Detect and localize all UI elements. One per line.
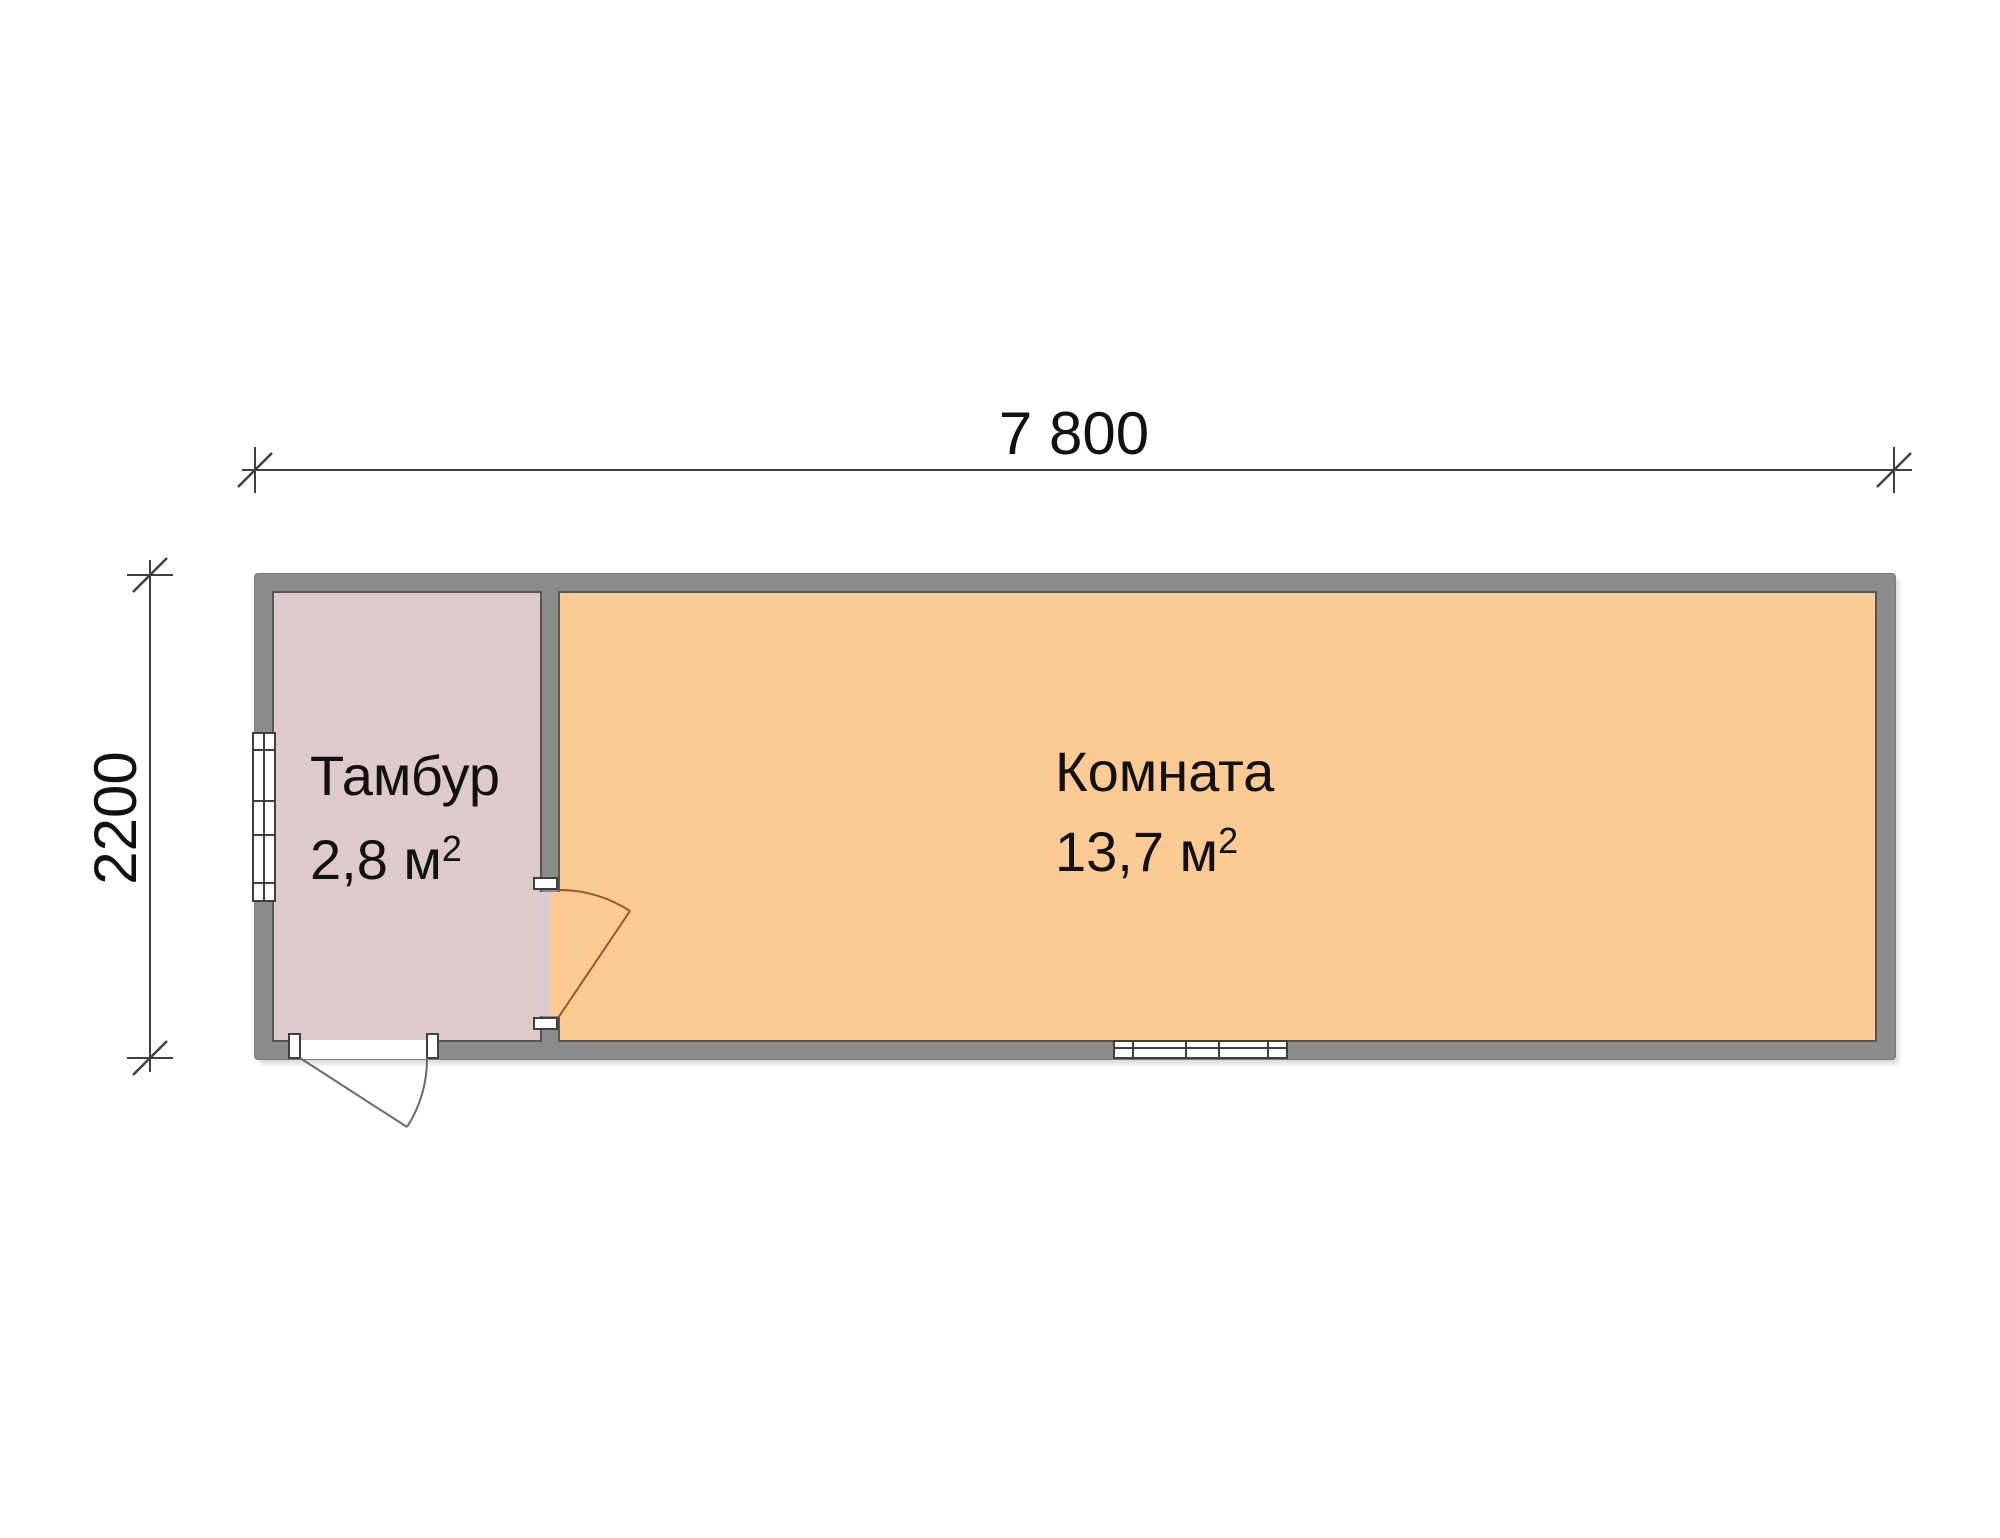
room-vestibule-area-exponent: 2 xyxy=(442,828,462,869)
interior-door-jamb-bottom xyxy=(533,1017,558,1030)
room-vestibule xyxy=(272,591,542,1042)
entrance-door-swing xyxy=(300,1058,427,1127)
window-frame-line xyxy=(1132,1042,1134,1057)
room-main-area-exponent: 2 xyxy=(1218,820,1238,861)
window-frame-line xyxy=(1218,1042,1220,1057)
vestibule-window xyxy=(252,732,276,902)
room-main xyxy=(558,591,1877,1042)
main-room-window xyxy=(1113,1040,1288,1059)
window-frame-line xyxy=(263,734,265,900)
window-frame-line xyxy=(1115,1047,1286,1049)
room-main-area-value: 13,7 м xyxy=(1055,820,1218,883)
entrance-door-jamb-left xyxy=(288,1033,301,1059)
room-vestibule-area-value: 2,8 м xyxy=(310,828,442,891)
room-main-area: 13,7 м2 xyxy=(1055,824,1238,880)
room-vestibule-name: Тамбур xyxy=(310,748,500,804)
entrance-door-jamb-right xyxy=(426,1033,439,1059)
entrance-doorway-opening xyxy=(301,1040,426,1059)
partition-door-opening xyxy=(538,892,560,1016)
interior-door-jamb-top xyxy=(533,877,558,890)
window-frame-line xyxy=(1185,1042,1187,1057)
window-frame-line xyxy=(1267,1042,1269,1057)
height-dimension-label: 2200 xyxy=(86,751,146,884)
room-vestibule-area: 2,8 м2 xyxy=(310,832,462,888)
room-main-name: Комната xyxy=(1055,744,1274,800)
floor-plan: 7 800 2200 Тамбур 2,8 м2 Комната 13,7 м2 xyxy=(0,0,2000,1538)
width-dimension-label: 7 800 xyxy=(954,404,1194,464)
